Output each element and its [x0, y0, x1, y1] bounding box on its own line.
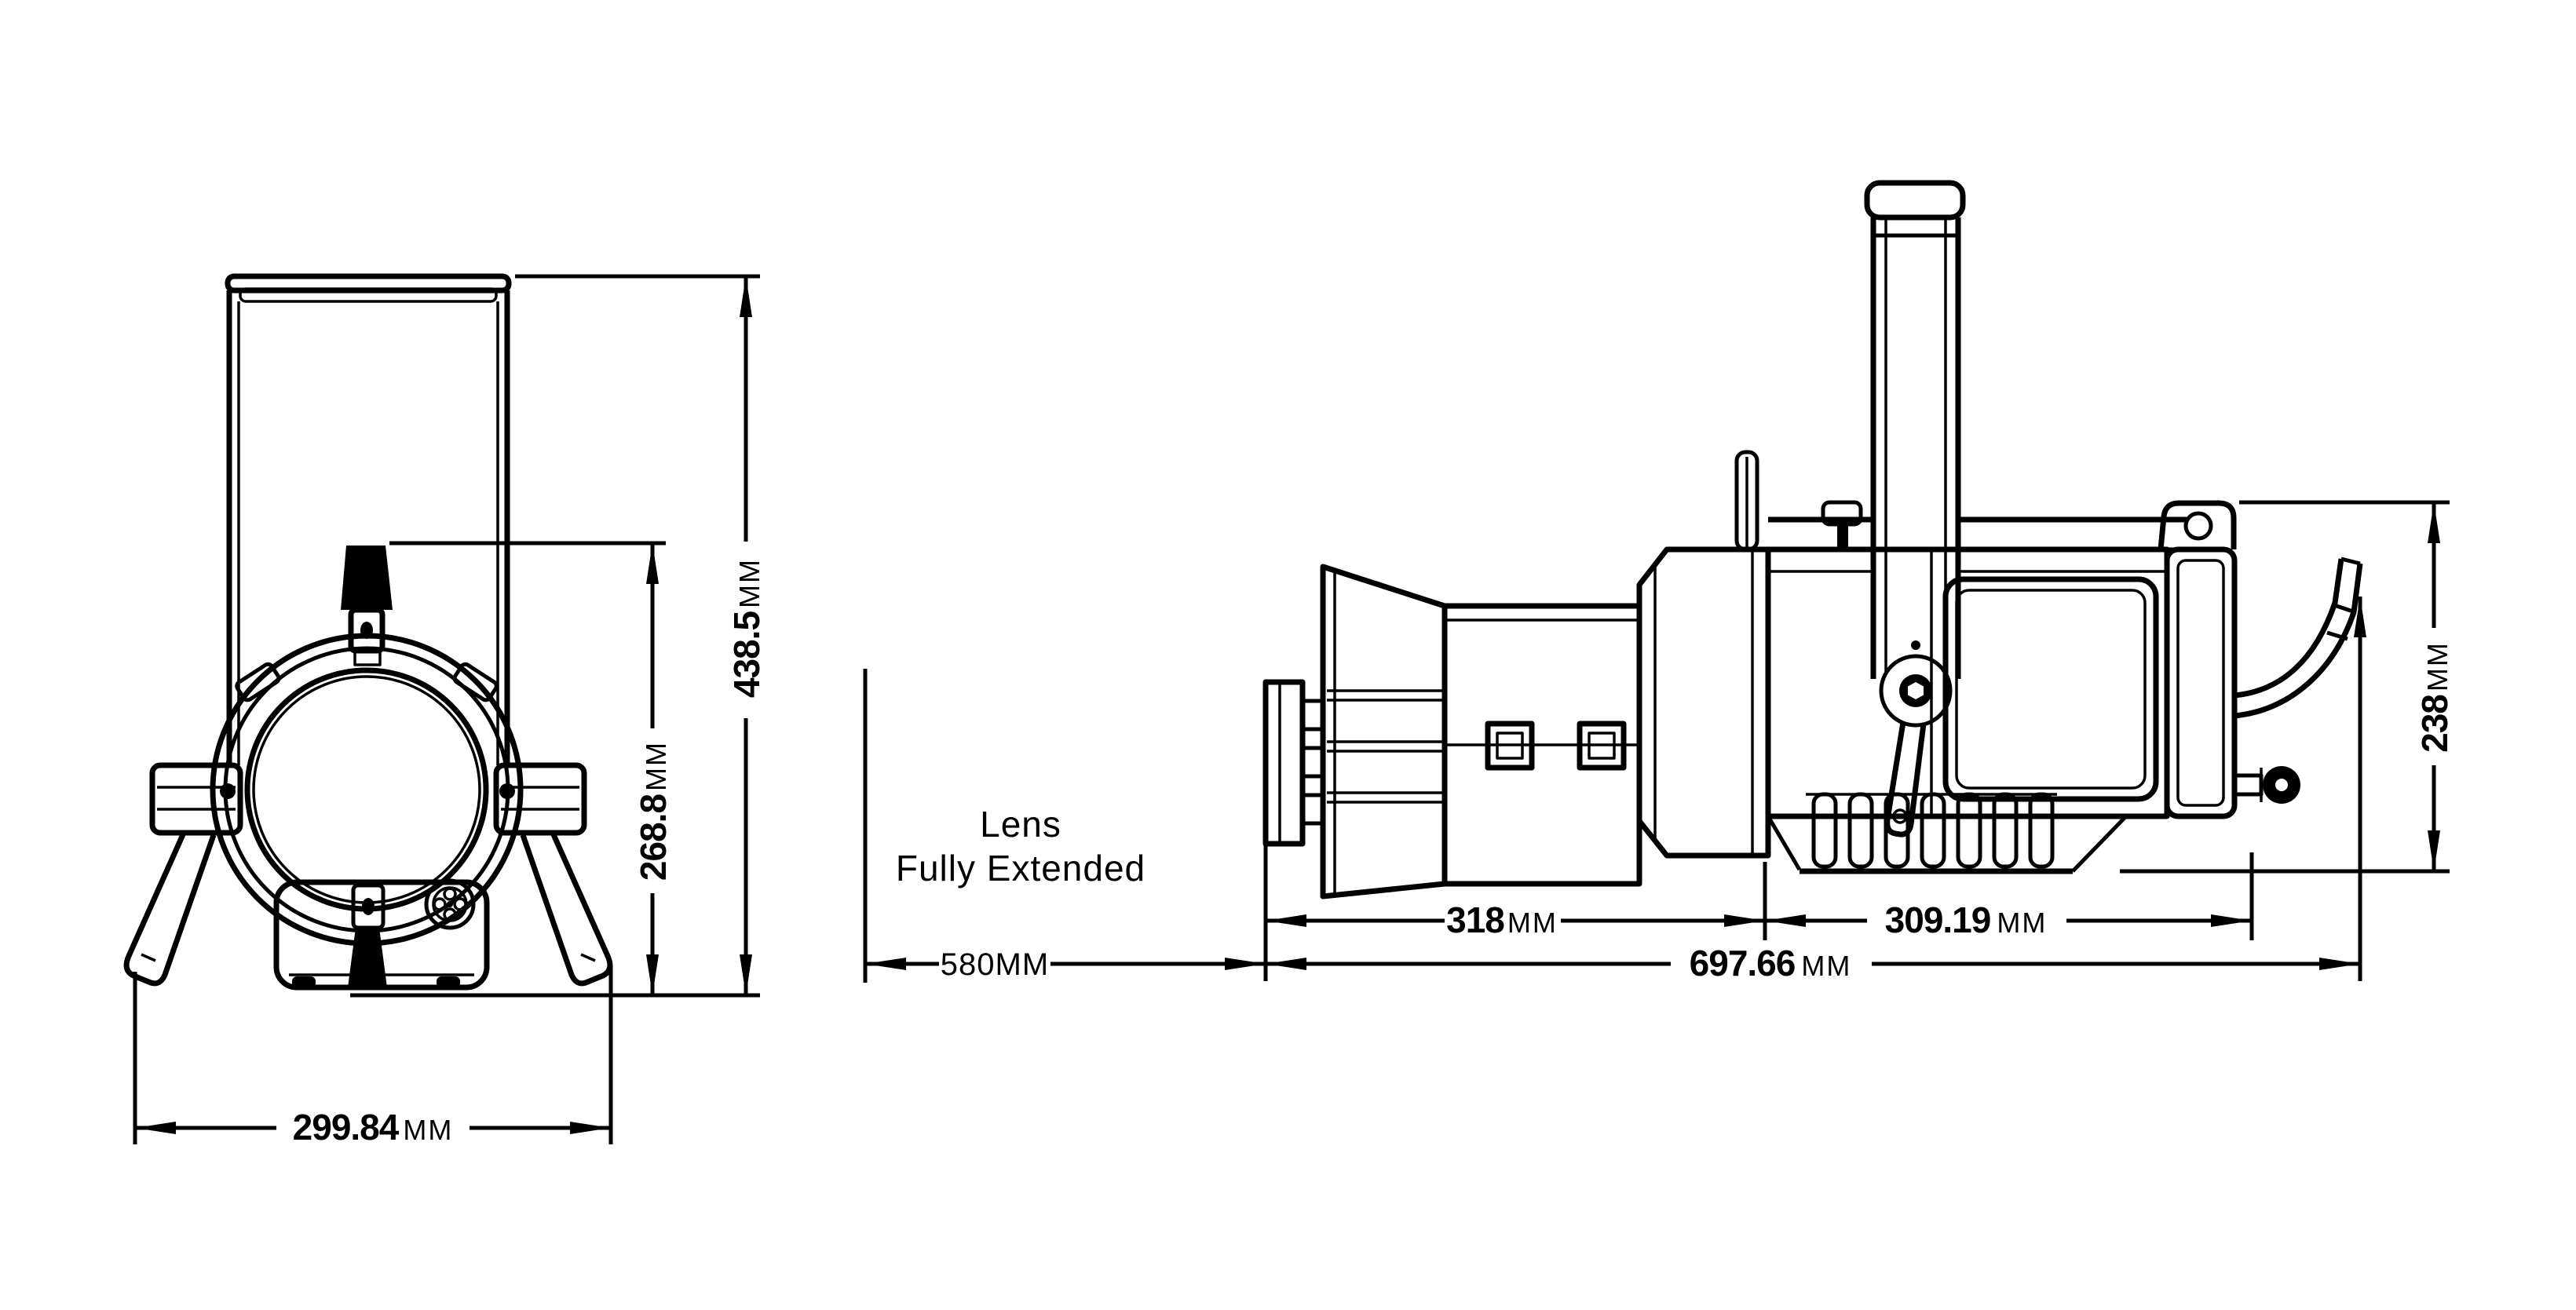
dim-rear-section-label: 309.19MM	[1885, 899, 2048, 940]
gate-block	[1639, 549, 1768, 856]
bottom-knob	[348, 928, 387, 987]
shutter-housing	[1323, 567, 1445, 896]
dim-body-height-label: 238MM	[2414, 641, 2455, 753]
leg-left	[126, 833, 214, 983]
dim-overall-width: 299.84MM	[135, 965, 611, 1148]
dim-front-section-label: 318MM	[1446, 899, 1558, 940]
heatsink	[1768, 794, 2125, 871]
dim-overall-length-label: 697.66MM	[1690, 943, 1852, 983]
note-lens-fully-extended: Lens Fully Extended	[896, 804, 1145, 889]
yoke-arm-cap	[1867, 183, 1963, 217]
dim-front-section: 318MM	[1266, 899, 1765, 940]
shutter-tab	[1303, 748, 1323, 776]
shutter-tab	[1303, 795, 1323, 823]
dim-lens-extension: 580MM	[865, 669, 1266, 983]
svg-text:Fully Extended: Fully Extended	[896, 848, 1145, 889]
lens-glass	[247, 670, 486, 909]
dim-rear-section: 309.19MM	[1765, 899, 2252, 940]
dim-overall-height: 438.5MM	[515, 276, 767, 995]
leg-right	[523, 833, 610, 983]
side-view: Lens Fully Extended 580MM 318MM 309.19MM	[865, 183, 2455, 983]
technical-drawing-page: 438.5MM 268.8MM 299.84MM	[0, 0, 2576, 1306]
fixture-dimension-drawing: 438.5MM 268.8MM 299.84MM	[0, 0, 2576, 1306]
dim-overall-width-label: 299.84MM	[293, 1107, 454, 1148]
yoke-arm	[1867, 183, 1963, 834]
rear-knob	[2234, 766, 2300, 804]
svg-text:Lens: Lens	[980, 804, 1061, 845]
body-panel	[1946, 579, 2156, 799]
foot-left	[292, 976, 316, 987]
front-view: 438.5MM 268.8MM 299.84MM	[126, 276, 767, 1148]
dim-overall-length: 697.66MM	[1266, 943, 2360, 983]
cable-hook	[2234, 559, 2360, 716]
dim-knob-height-label: 268.8MM	[633, 741, 674, 881]
shutter-tab	[1303, 701, 1323, 729]
dim-lens-extension-label: 580MM	[941, 947, 1049, 982]
dim-overall-height-label: 438.5MM	[726, 558, 767, 698]
rear-ear	[2161, 503, 2234, 549]
gel-frame-plate	[1266, 682, 1303, 844]
safety-screw	[426, 881, 473, 928]
foot-right	[437, 976, 460, 987]
rear-ear-hole	[2186, 513, 2211, 538]
